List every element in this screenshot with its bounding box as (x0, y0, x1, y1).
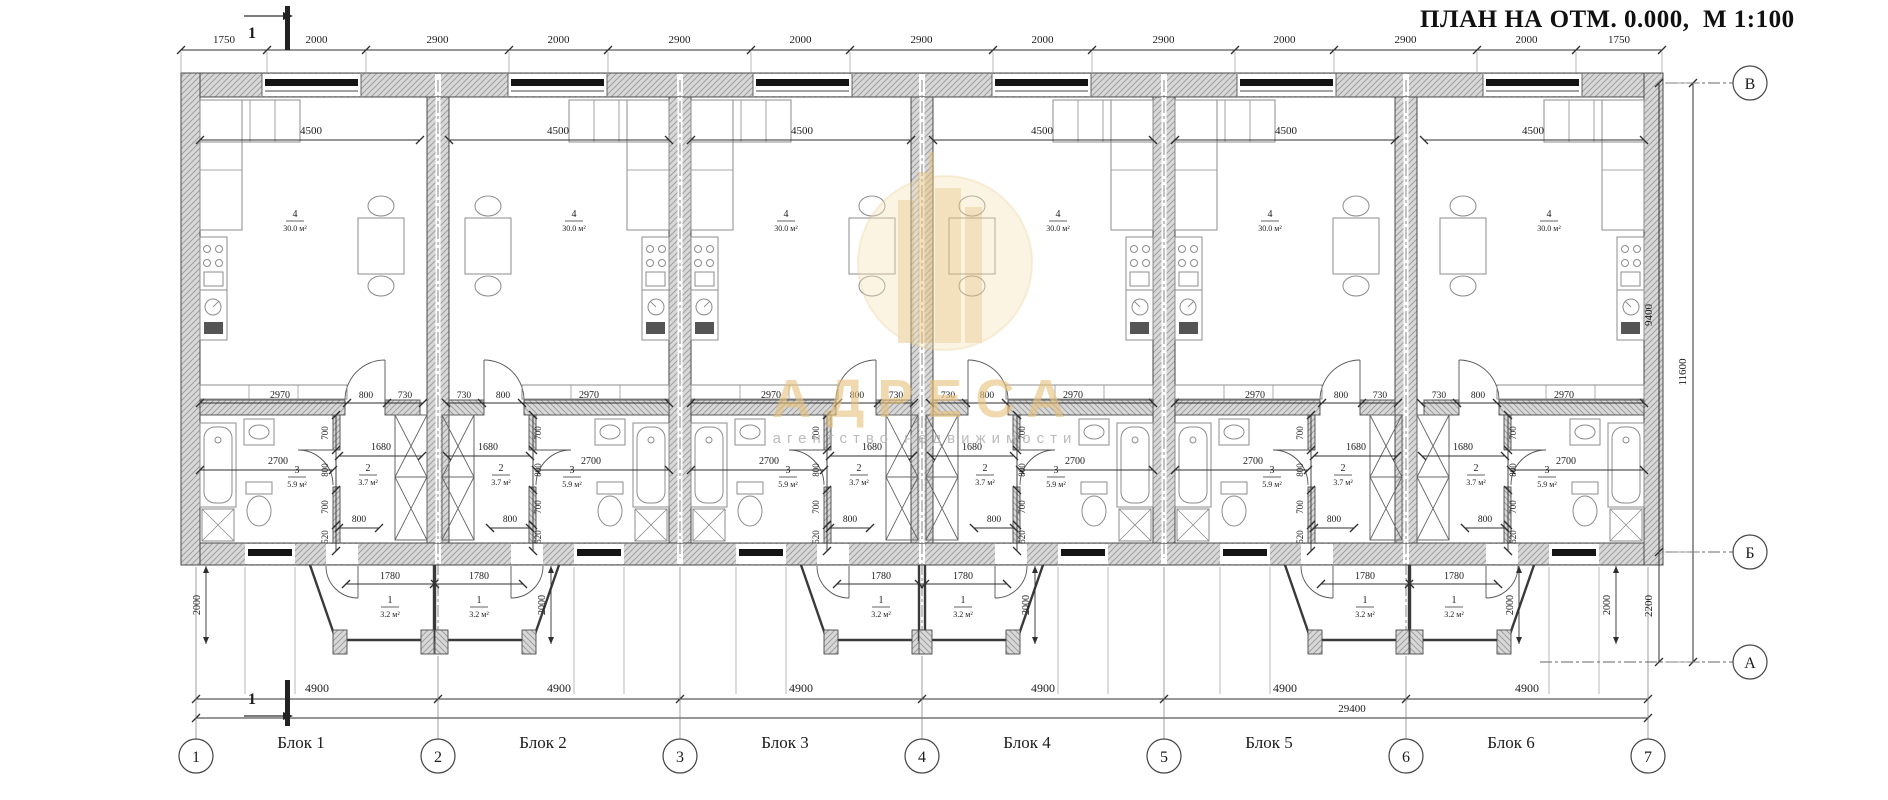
axis-marker-6: 6 (1389, 739, 1423, 773)
axis-number: 2 (434, 749, 442, 766)
watermark-brand-text: АДРЕСА (772, 368, 1078, 430)
room-number: 1 (961, 595, 966, 606)
dim-label: 9400 (1643, 304, 1655, 327)
room-number: 1 (388, 595, 393, 606)
dim-label: 520 (320, 530, 330, 544)
dim-label: 520 (1017, 530, 1027, 544)
section-mark-label: 1 (248, 691, 256, 708)
page-title: ПЛАН НА ОТМ. 0.000, М 1:100 (1420, 6, 1795, 34)
dim-label: 2900 (669, 34, 692, 46)
dim-label: 1780 (1444, 571, 1464, 582)
room-area: 30.0 м² (1258, 224, 1282, 233)
axis-marker-5: 5 (1147, 739, 1181, 773)
axis-marker-2: 2 (421, 739, 455, 773)
dim-label: 800 (533, 463, 543, 477)
dim-label: 2900 (1395, 34, 1418, 46)
dim-label: 1780 (380, 571, 400, 582)
dim-label: 2000 (306, 34, 329, 46)
room-area: 3.2 м² (1444, 610, 1464, 619)
axis-number: 6 (1402, 749, 1410, 766)
dim-label: 2000 (1505, 595, 1516, 615)
room-area: 30.0 м² (283, 224, 307, 233)
axis-marker-В: В (1733, 66, 1767, 100)
dim-label: 2700 (1556, 456, 1576, 467)
room-area: 3.7 м² (358, 478, 378, 487)
dim-label: 700 (1295, 500, 1305, 514)
block-label: Блок 5 (1245, 733, 1293, 752)
dim-label: 4500 (300, 125, 323, 137)
block-label: Блок 3 (761, 733, 809, 752)
room-area: 30.0 м² (562, 224, 586, 233)
dim-label: 2000 (1021, 595, 1032, 615)
dim-label: 4900 (547, 681, 571, 695)
dim-label: 2970 (270, 390, 290, 401)
axis-marker-Б: Б (1733, 535, 1767, 569)
room-area: 30.0 м² (1046, 224, 1070, 233)
dim-label: 700 (533, 426, 543, 440)
dim-label: 4900 (789, 681, 813, 695)
dim-label: 700 (1508, 426, 1518, 440)
axis-marker-1: 1 (179, 739, 213, 773)
room-area: 5.9 м² (287, 480, 307, 489)
dim-label: 520 (533, 530, 543, 544)
axis-letter: Б (1745, 545, 1754, 562)
dim-label: 4500 (547, 125, 570, 137)
room-number: 2 (366, 463, 371, 474)
dim-label: 1780 (1355, 571, 1375, 582)
dim-label: 800 (496, 391, 511, 401)
dim-label: 700 (320, 500, 330, 514)
room-area: 5.9 м² (778, 480, 798, 489)
dim-label: 800 (1334, 391, 1349, 401)
dim-label: 2000 (1516, 34, 1539, 46)
room-number: 3 (295, 465, 300, 476)
room-area: 3.2 м² (380, 610, 400, 619)
dim-label: 2900 (1153, 34, 1176, 46)
dim-label: 1780 (953, 571, 973, 582)
room-area: 3.7 м² (1333, 478, 1353, 487)
dim-label: 2700 (1065, 456, 1085, 467)
room-area: 3.2 м² (953, 610, 973, 619)
dim-label: 4500 (791, 125, 814, 137)
room-number: 4 (1056, 209, 1061, 220)
room-area: 3.7 м² (491, 478, 511, 487)
room-number: 2 (1341, 463, 1346, 474)
dim-label: 800 (1478, 515, 1493, 525)
dim-label: 4500 (1275, 125, 1298, 137)
dim-label: 800 (1295, 463, 1305, 477)
room-number: 1 (477, 595, 482, 606)
dim-label: 4900 (305, 681, 329, 695)
block-geometry-2 (431, 74, 673, 694)
section-mark-label: 1 (248, 25, 256, 42)
room-number: 4 (1268, 209, 1273, 220)
room-number: 2 (499, 463, 504, 474)
dim-label: 700 (1508, 500, 1518, 514)
dim-label: 700 (533, 500, 543, 514)
axis-number: 5 (1160, 749, 1168, 766)
dim-label: 2000 (537, 595, 548, 615)
room-number: 3 (1270, 465, 1275, 476)
dim-label: 730 (398, 391, 413, 401)
dim-label: 4500 (1031, 125, 1054, 137)
room-area: 5.9 м² (562, 480, 582, 489)
room-area: 5.9 м² (1046, 480, 1066, 489)
dim-label: 730 (1432, 391, 1447, 401)
dim-label: 800 (843, 515, 858, 525)
dim-label: 800 (503, 515, 518, 525)
room-area: 3.2 м² (469, 610, 489, 619)
room-number: 4 (293, 209, 298, 220)
axis-marker-4: 4 (905, 739, 939, 773)
dim-label: 2700 (268, 456, 288, 467)
dim-label: 2970 (1554, 390, 1574, 401)
dim-label: 2000 (790, 34, 813, 46)
dim-label: 1680 (1346, 442, 1366, 453)
dim-label: 800 (811, 463, 821, 477)
room-number: 3 (786, 465, 791, 476)
dim-label: 2000 (1274, 34, 1297, 46)
axis-marker-7: 7 (1631, 739, 1665, 773)
dim-label: 1780 (871, 571, 891, 582)
dim-label: 1680 (478, 442, 498, 453)
room-number: 2 (857, 463, 862, 474)
room-number: 4 (784, 209, 789, 220)
watermark-logo (858, 152, 1032, 350)
dim-label: 2900 (427, 34, 450, 46)
room-number: 1 (879, 595, 884, 606)
dim-label: 700 (1295, 426, 1305, 440)
room-area: 5.9 м² (1537, 480, 1557, 489)
room-number: 3 (570, 465, 575, 476)
room-number: 3 (1054, 465, 1059, 476)
dim-label: 1750 (213, 34, 236, 46)
room-area: 3.7 м² (849, 478, 869, 487)
watermark-subtitle-text: агентство недвижимости (773, 430, 1078, 447)
room-number: 2 (1474, 463, 1479, 474)
room-area: 30.0 м² (774, 224, 798, 233)
dim-label: 800 (1508, 463, 1518, 477)
axis-number: 4 (918, 749, 926, 766)
room-area: 30.0 м² (1537, 224, 1561, 233)
axis-number: 1 (192, 749, 200, 766)
axis-marker-3: 3 (663, 739, 697, 773)
dim-label: 2700 (581, 456, 601, 467)
room-number: 1 (1363, 595, 1368, 606)
dim-label: 4900 (1273, 681, 1297, 695)
dim-label: 800 (1471, 391, 1486, 401)
dim-label: 2200 (1643, 595, 1655, 618)
room-number: 2 (983, 463, 988, 474)
dim-label: 800 (987, 515, 1002, 525)
floor-plan-page: 4500297080073016802700800178070080070052… (0, 0, 1888, 800)
dim-label: 2000 (1602, 595, 1613, 615)
dim-label: 520 (1295, 530, 1305, 544)
dim-label: 700 (811, 500, 821, 514)
dim-label: 2900 (911, 34, 934, 46)
dim-label: 11600 (1677, 358, 1689, 386)
axis-letter: А (1744, 655, 1756, 672)
dim-label: 4500 (1522, 125, 1545, 137)
dim-label: 2700 (759, 456, 779, 467)
dim-label: 730 (1373, 391, 1388, 401)
axis-number: 3 (676, 749, 684, 766)
room-area: 3.7 м² (1466, 478, 1486, 487)
dim-label: 800 (1017, 463, 1027, 477)
dim-label: 4900 (1515, 681, 1539, 695)
block-label: Блок 6 (1487, 733, 1535, 752)
dim-label: 2700 (1243, 456, 1263, 467)
room-number: 3 (1545, 465, 1550, 476)
axis-number: 7 (1644, 749, 1652, 766)
dim-label: 2000 (548, 34, 571, 46)
room-area: 5.9 м² (1262, 480, 1282, 489)
room-number: 4 (1547, 209, 1552, 220)
dim-label: 1680 (1453, 442, 1473, 453)
room-area: 3.7 м² (975, 478, 995, 487)
dim-label: 800 (320, 463, 330, 477)
dim-label: 730 (457, 391, 472, 401)
dim-label: 800 (352, 515, 367, 525)
dim-label: 520 (811, 530, 821, 544)
room-number: 1 (1452, 595, 1457, 606)
room-area: 3.2 м² (1355, 610, 1375, 619)
block-geometry-1 (196, 74, 438, 694)
dim-label: 29400 (1338, 703, 1366, 715)
block-geometry-5 (1171, 74, 1413, 694)
dim-label: 1780 (469, 571, 489, 582)
dim-label: 4900 (1031, 681, 1055, 695)
dim-label: 1750 (1608, 34, 1631, 46)
dim-label: 800 (359, 391, 374, 401)
block-label: Блок 2 (519, 733, 567, 752)
dim-label: 2970 (579, 390, 599, 401)
room-number: 4 (572, 209, 577, 220)
dim-label: 800 (1327, 515, 1342, 525)
block-label: Блок 1 (277, 733, 325, 752)
axis-marker-А: А (1733, 645, 1767, 679)
dim-label: 700 (320, 426, 330, 440)
axis-letter: В (1745, 76, 1756, 93)
dim-label: 1680 (371, 442, 391, 453)
dim-label: 700 (1017, 500, 1027, 514)
room-area: 3.2 м² (871, 610, 891, 619)
dim-label: 2000 (1032, 34, 1055, 46)
dim-label: 2000 (192, 595, 203, 615)
dim-label: 520 (1508, 530, 1518, 544)
block-label: Блок 4 (1003, 733, 1051, 752)
dim-label: 2970 (1245, 390, 1265, 401)
